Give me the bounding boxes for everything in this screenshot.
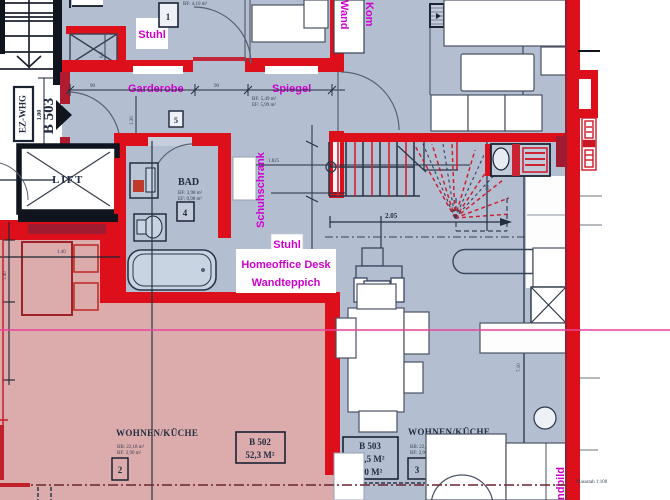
svg-text:Stuhl: Stuhl [138,29,166,41]
svg-text:2.05: 2.05 [385,212,398,220]
svg-text:1.00: 1.00 [37,110,43,121]
svg-text:4: 4 [183,208,188,218]
svg-text:Spiegel: Spiegel [272,83,311,95]
svg-text:7.10: 7.10 [517,363,522,372]
svg-text:EZ-WHG: EZ-WHG [18,95,28,133]
svg-text:Homeoffice Desk: Homeoffice Desk [241,259,331,271]
svg-text:Garderobe: Garderobe [128,83,184,95]
svg-text:LIFT: LIFT [52,174,84,186]
svg-text:1.30: 1.30 [130,116,135,125]
svg-text:BF: 2,90 m²: BF: 2,90 m² [117,450,142,456]
svg-text:B 503: B 503 [41,98,57,134]
svg-text:1.825: 1.825 [268,159,280,164]
svg-text:2: 2 [118,465,123,475]
svg-text:90: 90 [90,84,96,89]
svg-text:BF: 4,10 m²: BF: 4,10 m² [183,1,208,7]
svg-text:3: 3 [415,465,420,475]
svg-text:BF: 3,98 m²: BF: 3,98 m² [178,190,203,196]
svg-text:BAD: BAD [178,177,199,188]
svg-text:1.40: 1.40 [57,250,66,255]
svg-text:EF: 0,98 m²: EF: 0,98 m² [178,196,202,202]
svg-text:WOHNEN/KÜCHE: WOHNEN/KÜCHE [116,428,198,438]
svg-text:BF: 5,49 m²: BF: 5,49 m² [252,96,277,102]
svg-text:EF: 5,99 m²: EF: 5,99 m² [252,102,276,108]
svg-text:Schuhschrank: Schuhschrank [255,151,267,228]
svg-text:Massstab 1:100: Massstab 1:100 [576,480,608,485]
svg-text:1: 1 [166,12,171,22]
svg-text:BB: 22,18 m²: BB: 22,18 m² [117,444,145,450]
svg-text:90: 90 [214,84,220,89]
svg-text:B 502: B 502 [249,437,271,447]
svg-text:Wand: Wand [338,0,350,30]
svg-text:Wandteppich: Wandteppich [252,277,321,289]
svg-text:B 503: B 503 [359,441,381,451]
svg-text:Kom: Kom [363,2,375,27]
svg-text:5: 5 [174,116,178,125]
svg-text:52,3 M²: 52,3 M² [245,450,274,460]
